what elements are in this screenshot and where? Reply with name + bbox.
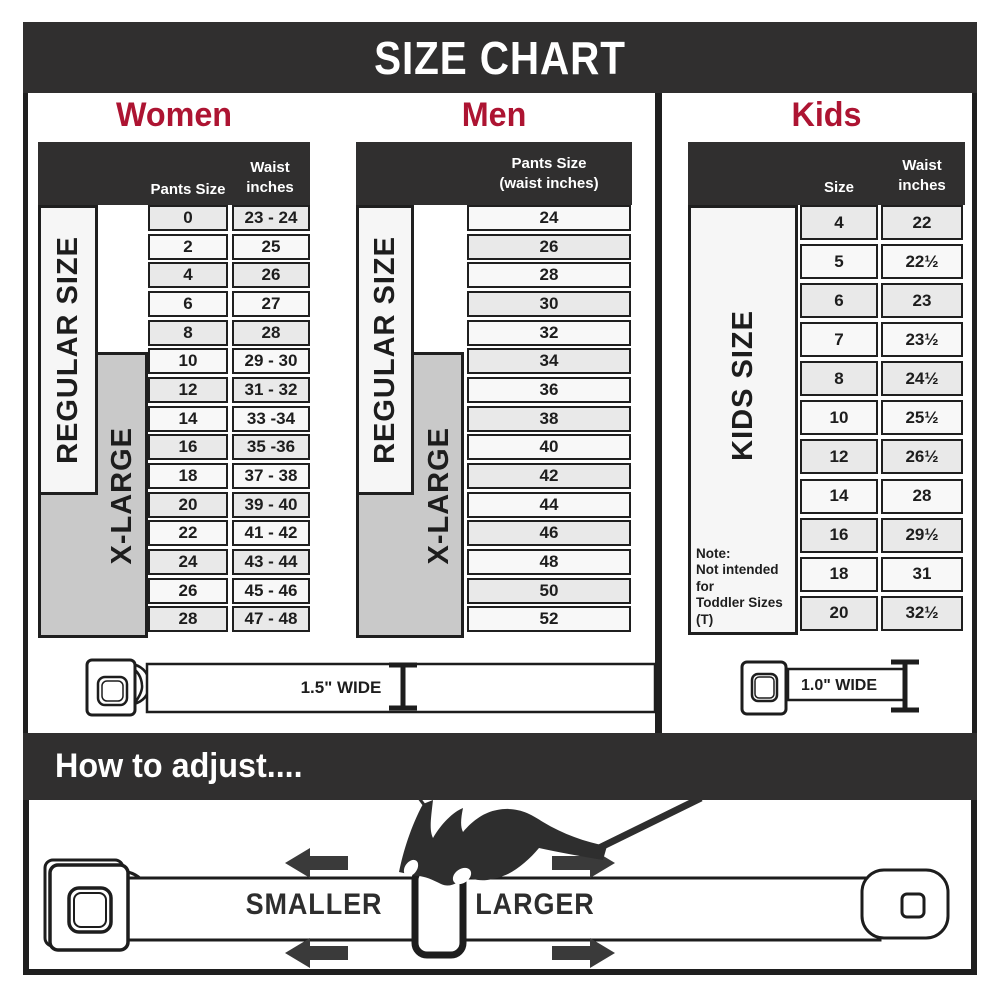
women-table-row: 20 39 - 40 xyxy=(148,492,310,521)
women-size-table: 0 23 - 24 2 25 4 26 6 27 8 28 xyxy=(148,205,310,635)
men-regular-size-label: REGULAR SIZE xyxy=(369,236,402,464)
frame-right-border xyxy=(972,93,977,733)
men-regular-size-block: REGULAR SIZE xyxy=(356,205,414,495)
pants-size-cell: 28 xyxy=(467,262,631,288)
men-table-row: 28 xyxy=(467,262,631,291)
women-table-row: 10 29 - 30 xyxy=(148,348,310,377)
kids-table-header: Size Waist inches xyxy=(688,142,965,205)
waist-cell: 35 -36 xyxy=(232,434,310,460)
pants-size-cell: 30 xyxy=(467,291,631,317)
women-title: Women xyxy=(45,94,303,136)
waist-cell: 25½ xyxy=(881,400,963,435)
pants-size-cell: 40 xyxy=(467,434,631,460)
women-col-waist: Waist inches xyxy=(228,158,312,198)
size-cell: 18 xyxy=(800,557,878,592)
kids-table-row: 12 26½ xyxy=(800,439,963,478)
kids-size-label: KIDS SIZE xyxy=(727,310,760,461)
men-xlarge-label: X-LARGE xyxy=(423,427,456,565)
adjust-belt-illustration xyxy=(29,796,971,969)
pants-size-cell: 4 xyxy=(148,262,228,288)
women-regular-size-block: REGULAR SIZE xyxy=(38,205,98,495)
women-table-row: 0 23 - 24 xyxy=(148,205,310,234)
waist-cell: 43 - 44 xyxy=(232,549,310,575)
men-table-row: 52 xyxy=(467,606,631,635)
men-table-row: 32 xyxy=(467,320,631,349)
panel-divider xyxy=(655,93,662,733)
pants-size-cell: 26 xyxy=(148,578,228,604)
waist-cell: 26½ xyxy=(881,439,963,474)
women-xlarge-label-wrap: X-LARGE xyxy=(90,356,154,636)
women-table-row: 18 37 - 38 xyxy=(148,463,310,492)
pants-size-cell: 52 xyxy=(467,606,631,632)
men-table-row: 36 xyxy=(467,377,631,406)
adult-belt-width-label: 1.5" WIDE xyxy=(288,678,394,698)
waist-cell: 29 - 30 xyxy=(232,348,310,374)
pants-size-cell: 26 xyxy=(467,234,631,260)
women-table-header: Pants Size Waist inches xyxy=(38,142,310,205)
pants-size-cell: 18 xyxy=(148,463,228,489)
kids-table-row: 20 32½ xyxy=(800,596,963,635)
kids-table-row: 6 23 xyxy=(800,283,963,322)
waist-cell: 25 xyxy=(232,234,310,260)
pants-size-cell: 36 xyxy=(467,377,631,403)
kids-table-row: 14 28 xyxy=(800,479,963,518)
women-table-row: 16 35 -36 xyxy=(148,434,310,463)
kids-table-row: 16 29½ xyxy=(800,518,963,557)
pants-size-cell: 12 xyxy=(148,377,228,403)
waist-cell: 28 xyxy=(881,479,963,514)
women-table-row: 14 33 -34 xyxy=(148,406,310,435)
kids-table-row: 4 22 xyxy=(800,205,963,244)
men-table-row: 34 xyxy=(467,348,631,377)
kids-size-table: 4 22 5 22½ 6 23 7 23½ 8 24½ xyxy=(800,205,963,635)
men-table-row: 44 xyxy=(467,492,631,521)
men-table-row: 26 xyxy=(467,234,631,263)
pants-size-cell: 10 xyxy=(148,348,228,374)
kids-table-row: 7 23½ xyxy=(800,322,963,361)
pants-size-cell: 50 xyxy=(467,578,631,604)
waist-cell: 24½ xyxy=(881,361,963,396)
larger-label: LARGER xyxy=(468,889,603,921)
size-chart-page: SIZE CHART Women Men Kids Pants Size Wai… xyxy=(0,0,1000,1000)
women-table-row: 8 28 xyxy=(148,320,310,349)
pants-size-cell: 24 xyxy=(467,205,631,231)
kids-belt-width-label: 1.0" WIDE xyxy=(796,677,882,695)
women-table-row: 28 47 - 48 xyxy=(148,606,310,635)
kids-table-row: 8 24½ xyxy=(800,361,963,400)
pants-size-cell: 22 xyxy=(148,520,228,546)
size-cell: 16 xyxy=(800,518,878,553)
women-table-row: 4 26 xyxy=(148,262,310,291)
pants-size-cell: 28 xyxy=(148,606,228,632)
page-title: SIZE CHART xyxy=(374,31,626,85)
kids-col-size: Size xyxy=(798,178,880,198)
men-col-pants-size: Pants Size (waist inches) xyxy=(467,154,631,194)
kids-title: Kids xyxy=(695,94,958,136)
women-table-row: 26 45 - 46 xyxy=(148,578,310,607)
waist-cell: 31 xyxy=(881,557,963,592)
women-table-row: 2 25 xyxy=(148,234,310,263)
waist-cell: 39 - 40 xyxy=(232,492,310,518)
women-xlarge-label: X-LARGE xyxy=(106,427,139,565)
men-title: Men xyxy=(363,94,625,136)
pants-size-cell: 34 xyxy=(467,348,631,374)
women-table-row: 12 31 - 32 xyxy=(148,377,310,406)
men-table-row: 40 xyxy=(467,434,631,463)
size-cell: 10 xyxy=(800,400,878,435)
waist-cell: 22 xyxy=(881,205,963,240)
how-to-adjust-title: How to adjust.... xyxy=(55,747,303,786)
men-table-row: 48 xyxy=(467,549,631,578)
waist-cell: 45 - 46 xyxy=(232,578,310,604)
pants-size-cell: 32 xyxy=(467,320,631,346)
size-cell: 6 xyxy=(800,283,878,318)
pants-size-cell: 16 xyxy=(148,434,228,460)
pants-size-cell: 38 xyxy=(467,406,631,432)
men-table-row: 50 xyxy=(467,578,631,607)
men-size-table: 24 26 28 30 32 34 36 xyxy=(467,205,631,635)
smaller-label: SMALLER xyxy=(247,889,380,921)
size-cell: 12 xyxy=(800,439,878,474)
waist-cell: 31 - 32 xyxy=(232,377,310,403)
men-xlarge-label-wrap: X-LARGE xyxy=(408,356,470,636)
waist-cell: 23½ xyxy=(881,322,963,357)
pants-size-cell: 46 xyxy=(467,520,631,546)
pants-size-cell: 20 xyxy=(148,492,228,518)
women-table-row: 6 27 xyxy=(148,291,310,320)
waist-cell: 37 - 38 xyxy=(232,463,310,489)
waist-cell: 27 xyxy=(232,291,310,317)
waist-cell: 28 xyxy=(232,320,310,346)
pulled-strap xyxy=(595,798,701,850)
kids-col-waist: Waist inches xyxy=(879,156,965,196)
waist-cell: 33 -34 xyxy=(232,406,310,432)
men-table-header: Pants Size (waist inches) xyxy=(356,142,632,205)
women-table-row: 24 43 - 44 xyxy=(148,549,310,578)
pants-size-cell: 24 xyxy=(148,549,228,575)
pants-size-cell: 6 xyxy=(148,291,228,317)
size-cell: 4 xyxy=(800,205,878,240)
pants-size-cell: 8 xyxy=(148,320,228,346)
pants-size-cell: 14 xyxy=(148,406,228,432)
hand-icon xyxy=(399,796,607,887)
waist-cell: 29½ xyxy=(881,518,963,553)
waist-cell: 41 - 42 xyxy=(232,520,310,546)
waist-cell: 47 - 48 xyxy=(232,606,310,632)
men-table-row: 46 xyxy=(467,520,631,549)
kids-size-block: KIDS SIZE Note: Not intended for Toddler… xyxy=(688,205,798,635)
size-cell: 8 xyxy=(800,361,878,396)
men-table-row: 30 xyxy=(467,291,631,320)
pants-size-cell: 0 xyxy=(148,205,228,231)
kids-table-row: 5 22½ xyxy=(800,244,963,283)
kids-table-row: 10 25½ xyxy=(800,400,963,439)
waist-cell: 22½ xyxy=(881,244,963,279)
size-cell: 7 xyxy=(800,322,878,357)
waist-cell: 23 - 24 xyxy=(232,205,310,231)
women-regular-size-label: REGULAR SIZE xyxy=(52,236,85,464)
kids-note: Note: Not intended for Toddler Sizes (T) xyxy=(696,546,796,629)
pants-size-cell: 48 xyxy=(467,549,631,575)
women-col-pants-size: Pants Size xyxy=(146,180,230,200)
waist-cell: 23 xyxy=(881,283,963,318)
waist-cell: 26 xyxy=(232,262,310,288)
men-table-row: 42 xyxy=(467,463,631,492)
size-cell: 5 xyxy=(800,244,878,279)
kids-table-row: 18 31 xyxy=(800,557,963,596)
pants-size-cell: 2 xyxy=(148,234,228,260)
waist-cell: 32½ xyxy=(881,596,963,631)
pants-size-cell: 44 xyxy=(467,492,631,518)
pants-size-cell: 42 xyxy=(467,463,631,489)
size-cell: 14 xyxy=(800,479,878,514)
how-to-adjust-banner: How to adjust.... xyxy=(23,733,977,800)
size-chart-banner: SIZE CHART xyxy=(23,22,977,93)
women-table-row: 22 41 - 42 xyxy=(148,520,310,549)
size-cell: 20 xyxy=(800,596,878,631)
men-table-row: 24 xyxy=(467,205,631,234)
men-table-row: 38 xyxy=(467,406,631,435)
frame-left-border xyxy=(23,93,28,733)
